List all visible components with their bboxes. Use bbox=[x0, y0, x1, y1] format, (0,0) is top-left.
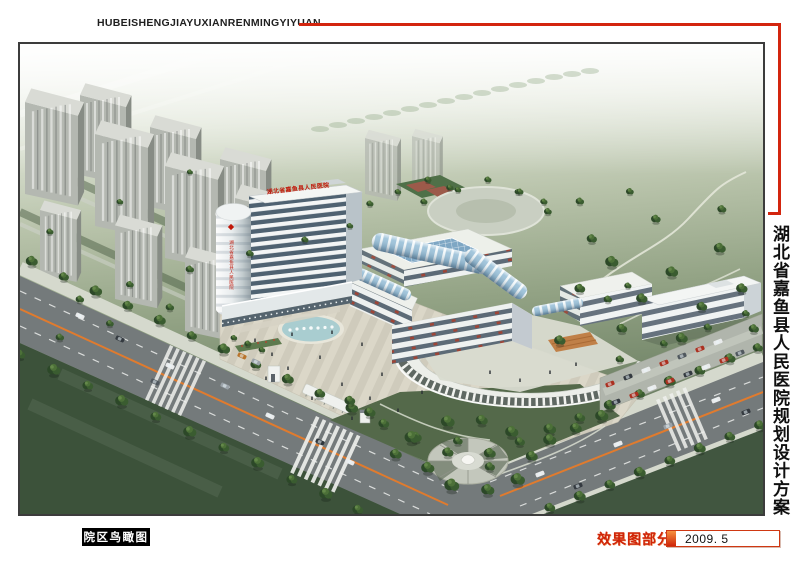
tower-side bbox=[346, 185, 362, 284]
distant-tree bbox=[347, 118, 365, 124]
person bbox=[351, 417, 352, 421]
date-box: 2009. 5 bbox=[666, 530, 780, 547]
accent-rule-horizontal bbox=[299, 23, 781, 26]
distant-tree bbox=[329, 122, 347, 128]
person bbox=[271, 353, 272, 357]
gatehouse bbox=[268, 366, 280, 382]
project-title-vertical: 湖北省嘉鱼县人民医院规划设计方案 bbox=[768, 225, 790, 521]
person bbox=[549, 371, 550, 375]
person bbox=[381, 373, 382, 377]
distant-tree bbox=[527, 78, 545, 84]
person bbox=[421, 391, 422, 395]
distant-tree bbox=[401, 106, 419, 112]
person bbox=[341, 383, 342, 387]
residential-tower bbox=[25, 88, 84, 205]
date-accent-bar bbox=[667, 531, 676, 546]
person bbox=[319, 356, 320, 360]
view-label: 院区鸟瞰图 bbox=[82, 528, 150, 546]
person bbox=[369, 397, 370, 401]
person bbox=[265, 377, 266, 381]
person bbox=[291, 333, 292, 337]
circular-garden bbox=[428, 438, 508, 484]
distant-tree bbox=[437, 98, 455, 104]
person bbox=[311, 397, 312, 401]
distant-tree bbox=[509, 82, 527, 88]
rendering-frame: 湖北省嘉鱼县人民医院 湖北省嘉鱼县人民医院 bbox=[18, 42, 765, 516]
aerial-rendering: 湖北省嘉鱼县人民医院 湖北省嘉鱼县人民医院 bbox=[20, 44, 763, 514]
section-label: 效果图部分 bbox=[597, 529, 672, 549]
distant-tree bbox=[365, 114, 383, 120]
person bbox=[575, 363, 576, 367]
residential-tower bbox=[115, 215, 162, 309]
person bbox=[519, 379, 520, 383]
distant-tree bbox=[455, 94, 473, 100]
distant-tree bbox=[419, 102, 437, 108]
distant-tree bbox=[383, 110, 401, 116]
distant-tree bbox=[545, 74, 563, 80]
distant-tree bbox=[563, 71, 581, 77]
accent-rule-vertical bbox=[778, 23, 781, 215]
pinyin-title: HUBEISHENGJIAYUXIANRENMINGYIYUAN bbox=[97, 17, 321, 29]
accent-rule-tick bbox=[768, 212, 781, 215]
person bbox=[331, 331, 332, 335]
distant-tree bbox=[473, 90, 491, 96]
presentation-board: HUBEISHENGJIAYUXIANRENMINGYIYUAN 湖北省嘉鱼县人… bbox=[0, 0, 800, 565]
person bbox=[287, 367, 288, 371]
person bbox=[361, 343, 362, 347]
person bbox=[397, 409, 398, 413]
rear-circular-plaza bbox=[428, 187, 544, 235]
residential-tower bbox=[40, 201, 81, 282]
tower-side-sign: 湖北省嘉鱼县人民医院 bbox=[229, 239, 235, 291]
distant-tree bbox=[491, 86, 509, 92]
date-text: 2009. 5 bbox=[685, 532, 729, 546]
distant-tree bbox=[581, 68, 599, 74]
distant-tree bbox=[311, 126, 329, 132]
person bbox=[489, 371, 490, 375]
person bbox=[254, 339, 255, 343]
